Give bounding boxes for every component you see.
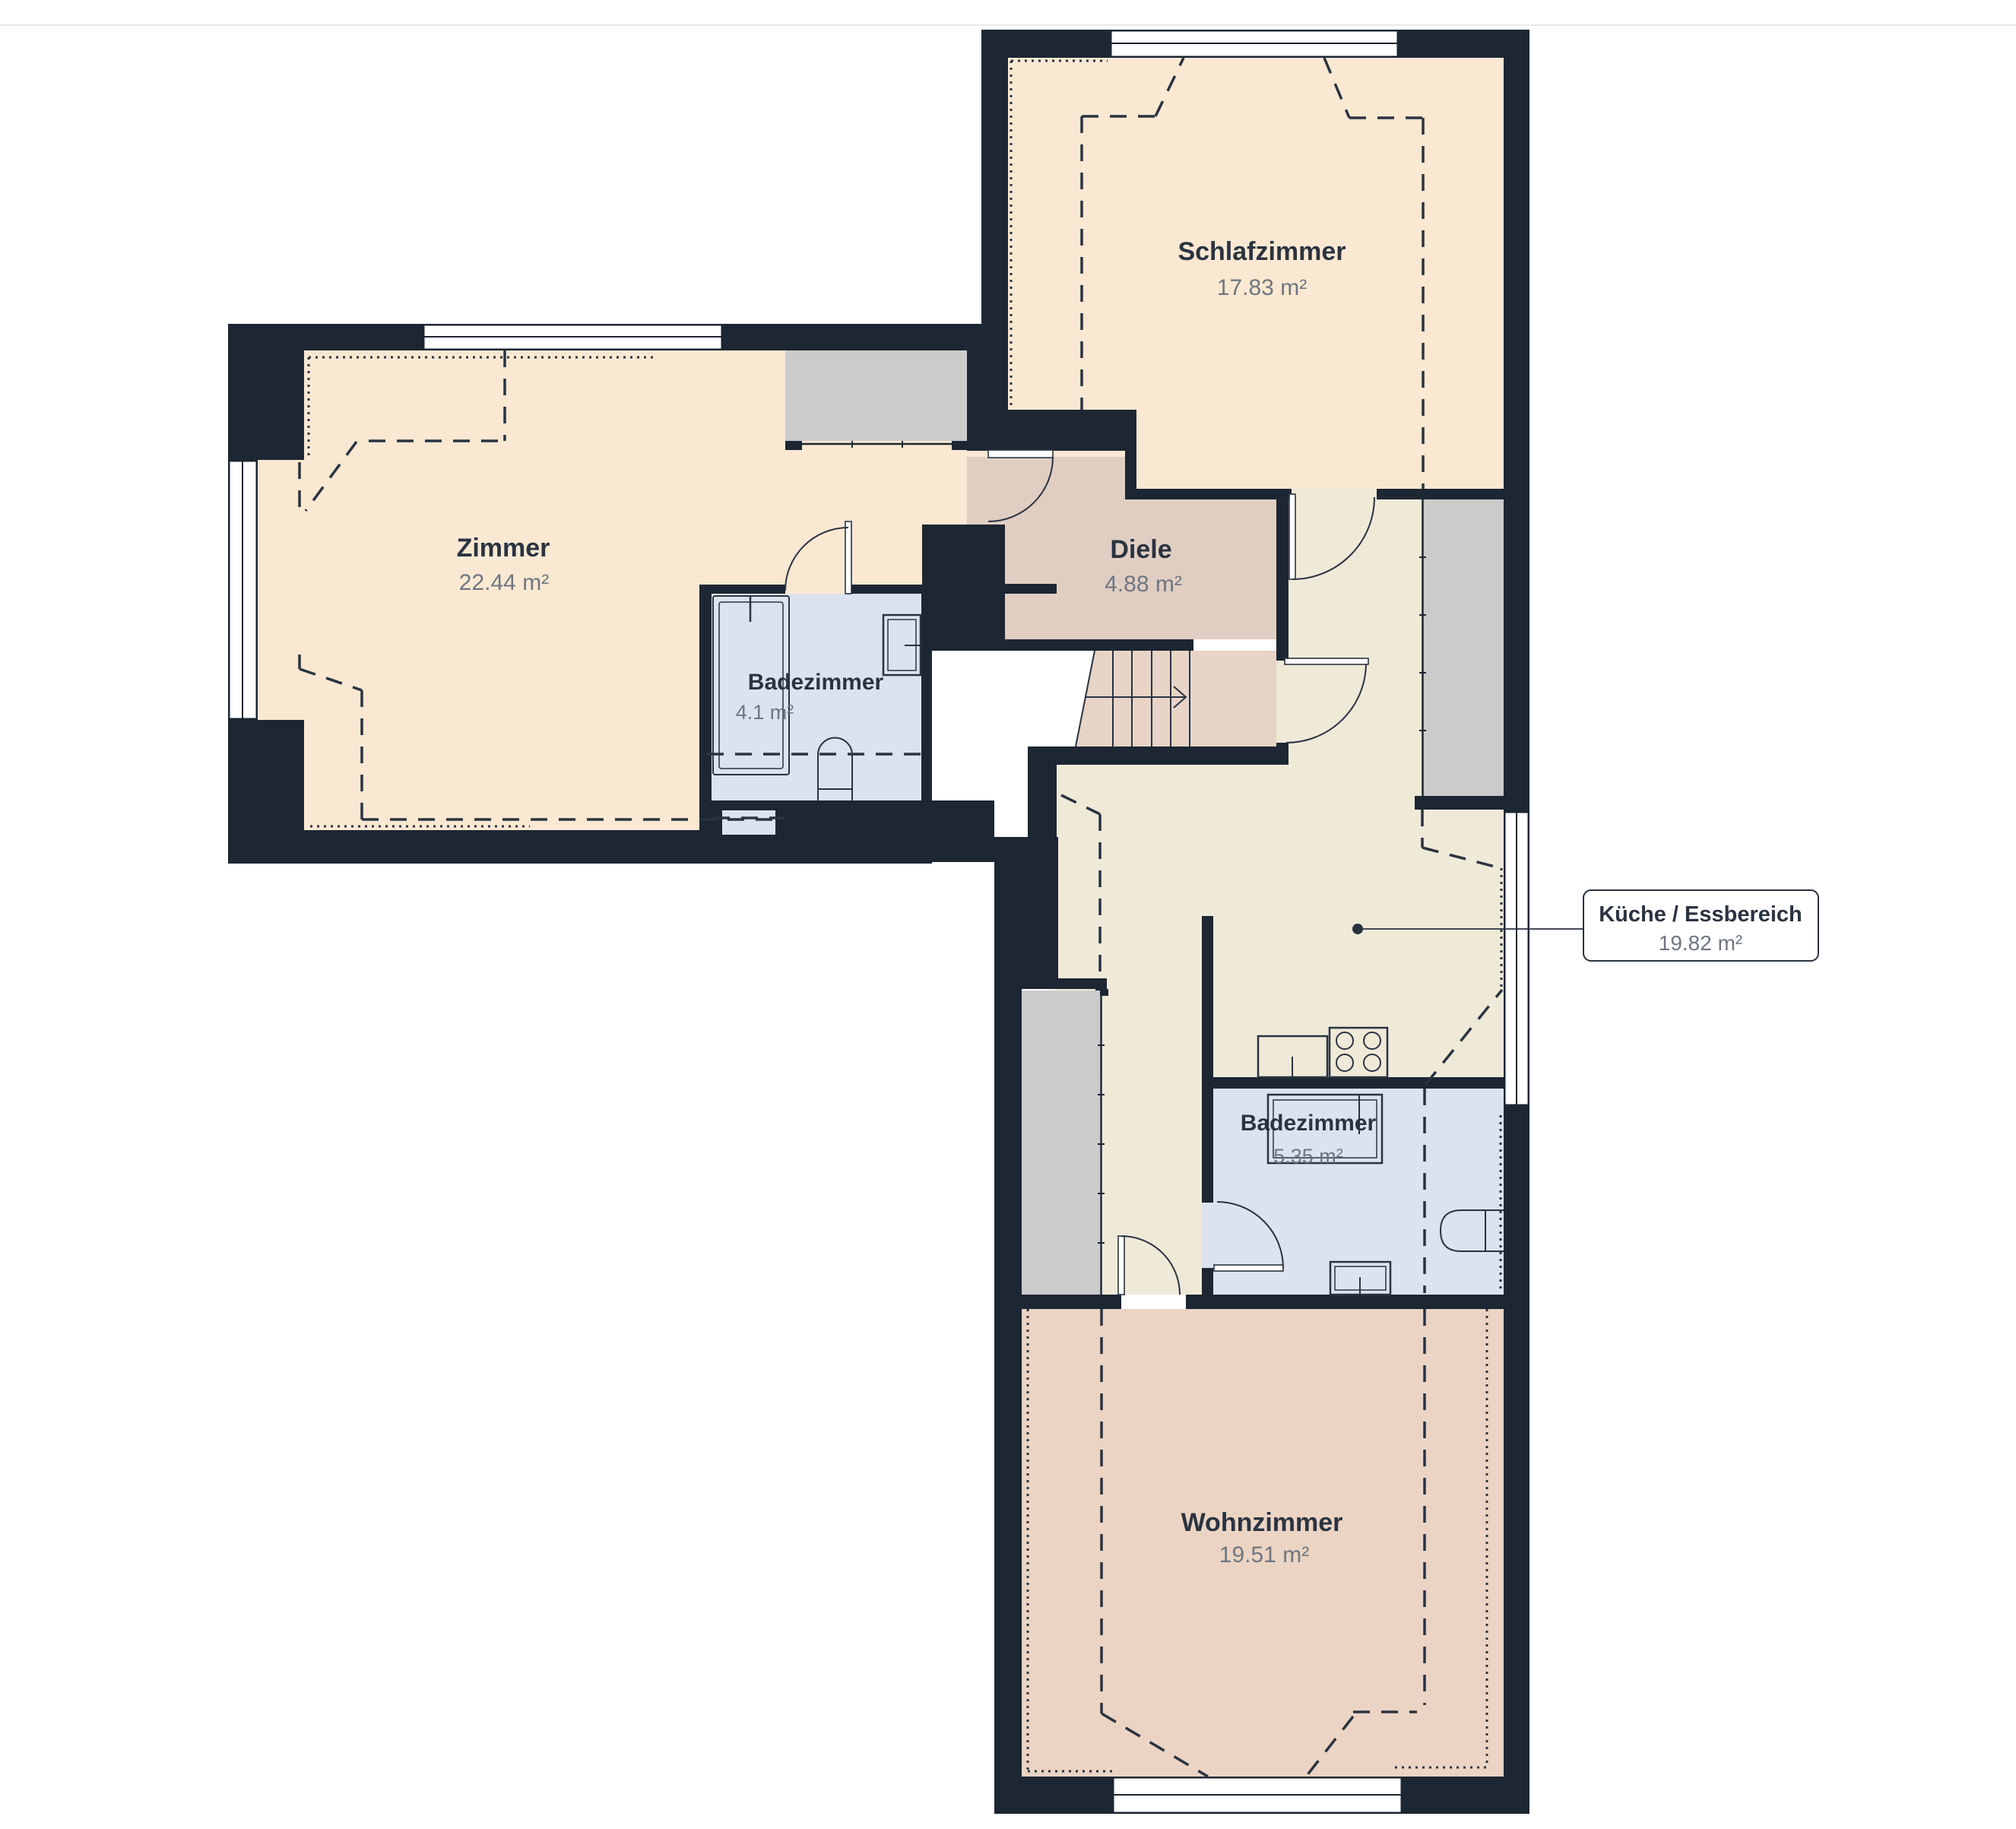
svg-text:Badezimmer: Badezimmer [748, 670, 884, 695]
svg-text:Küche / Essbereich: Küche / Essbereich [1599, 902, 1802, 927]
svg-text:4.88 m²: 4.88 m² [1105, 572, 1182, 597]
svg-text:Badezimmer: Badezimmer [1241, 1111, 1377, 1136]
svg-text:Diele: Diele [1110, 535, 1171, 564]
svg-text:Wohnzimmer: Wohnzimmer [1181, 1508, 1343, 1537]
svg-text:22.44 m²: 22.44 m² [459, 570, 549, 595]
svg-text:Schlafzimmer: Schlafzimmer [1178, 237, 1346, 266]
svg-text:17.83 m²: 17.83 m² [1217, 275, 1307, 300]
svg-text:19.82 m²: 19.82 m² [1659, 931, 1743, 955]
svg-text:Zimmer: Zimmer [457, 534, 550, 563]
svg-text:19.51 m²: 19.51 m² [1219, 1542, 1309, 1567]
svg-text:4.1 m²: 4.1 m² [736, 701, 794, 724]
svg-text:5.35 m²: 5.35 m² [1273, 1145, 1343, 1168]
